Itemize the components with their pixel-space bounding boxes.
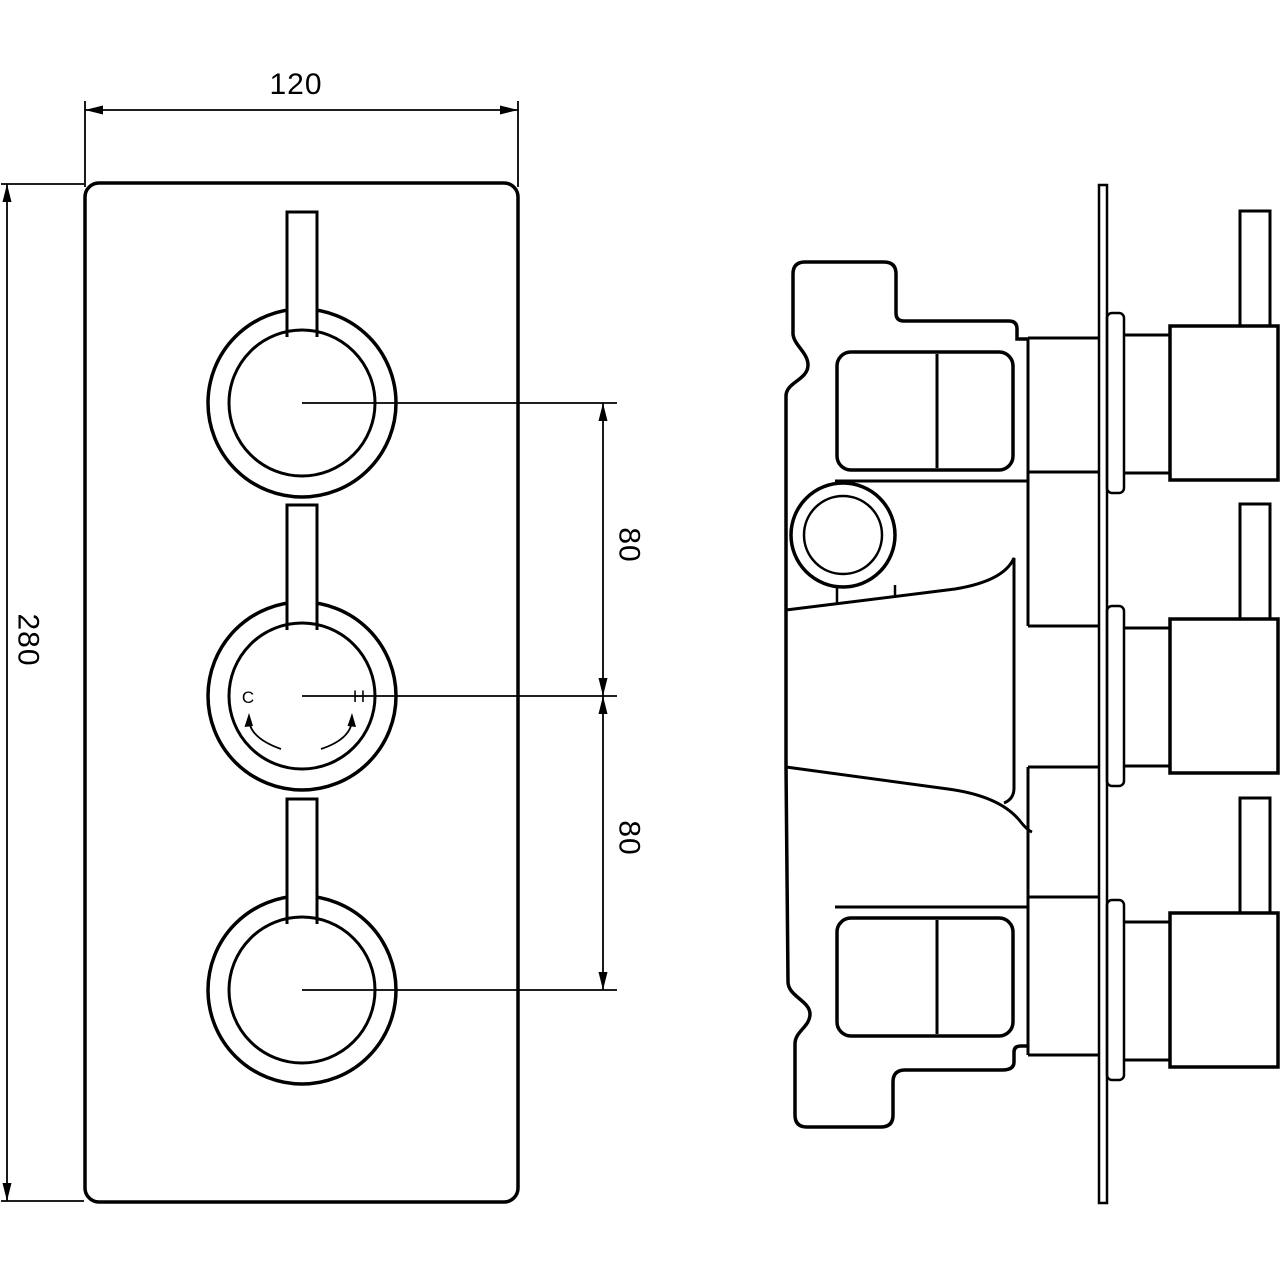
height-dimension-label: 280 — [12, 613, 45, 666]
technical-drawing-page: C H 120 280 80 80 — [0, 0, 1280, 1280]
knob-spacing-bottom-label: 80 — [613, 820, 646, 855]
cold-indicator-label: C — [242, 688, 254, 707]
bottom-knob-lever-fill — [287, 799, 317, 924]
hot-indicator-label: H — [353, 687, 365, 706]
middle-knob-lever-fill — [287, 505, 317, 630]
width-dimension-label: 120 — [269, 68, 322, 101]
shower-valve-technical-drawing: C H 120 280 80 80 — [0, 0, 1280, 1280]
top-knob-lever-fill — [287, 212, 317, 337]
knob-spacing-top-label: 80 — [613, 527, 646, 562]
drawing-background — [0, 0, 1280, 1280]
